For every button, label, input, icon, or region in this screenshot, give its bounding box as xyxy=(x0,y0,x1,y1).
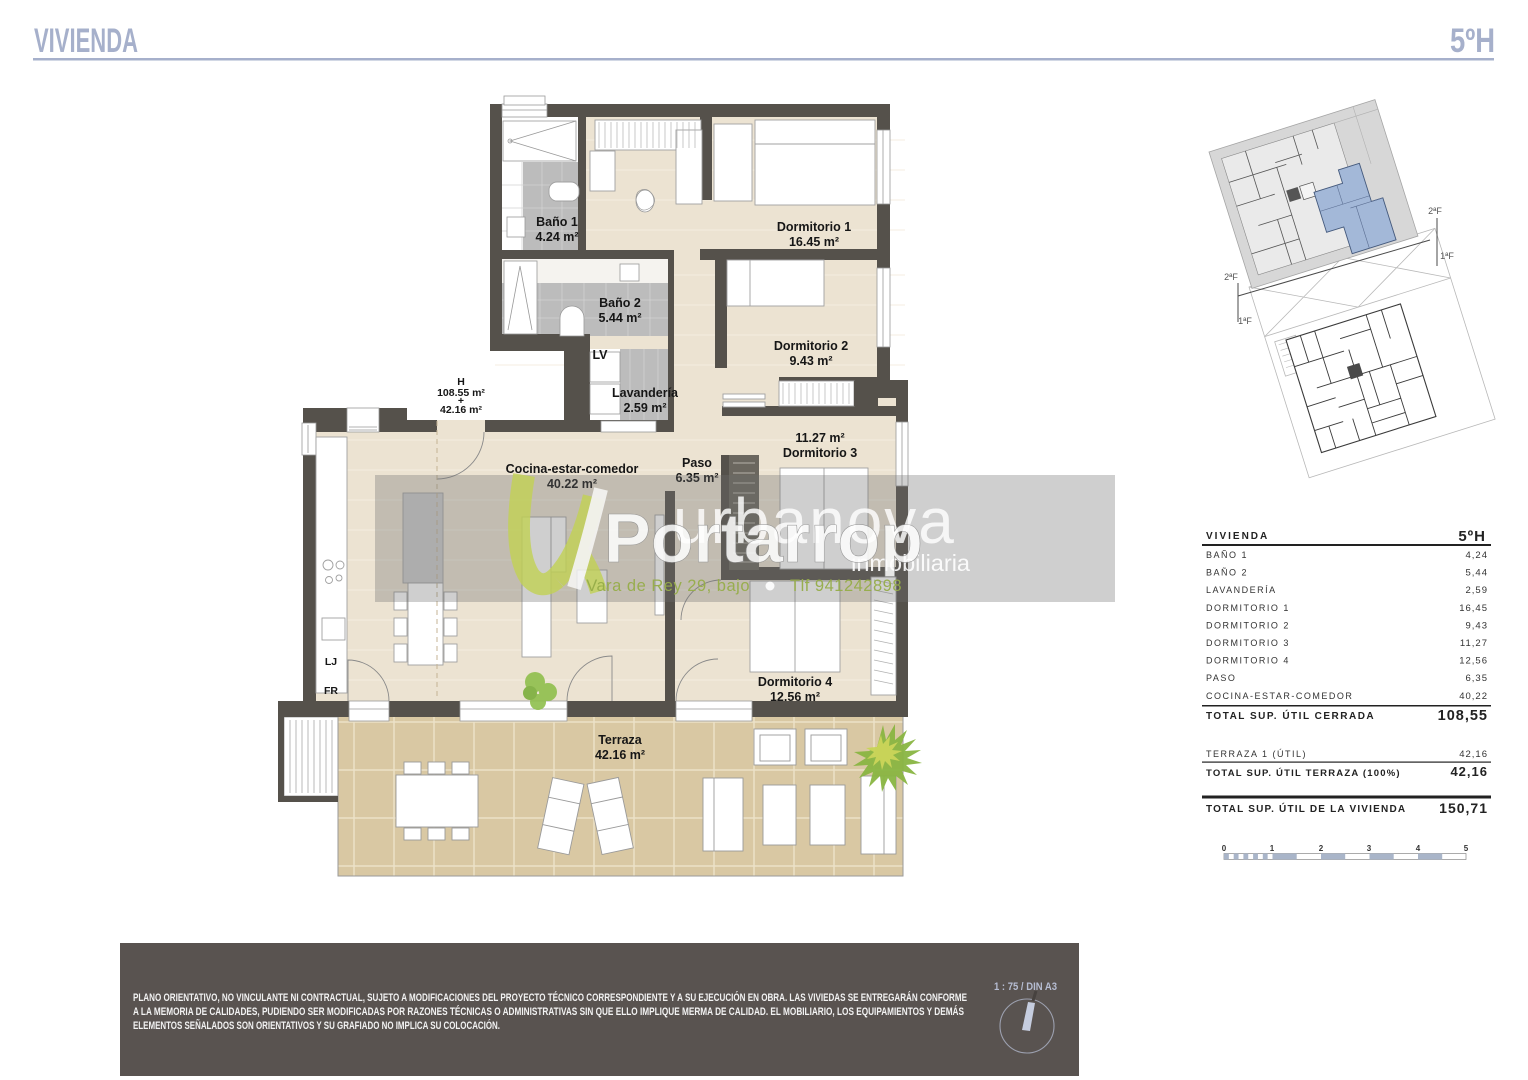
svg-text:2ªF: 2ªF xyxy=(1224,272,1238,282)
svg-text:9,43: 9,43 xyxy=(1466,620,1489,631)
svg-text:DORMITORIO 1: DORMITORIO 1 xyxy=(1206,603,1290,613)
svg-text:BAÑO 2: BAÑO 2 xyxy=(1206,568,1248,578)
svg-text:COCINA-ESTAR-COMEDOR: COCINA-ESTAR-COMEDOR xyxy=(1206,691,1353,701)
svg-text:16.45 m²: 16.45 m² xyxy=(789,235,839,249)
svg-text:2: 2 xyxy=(1319,844,1324,853)
svg-text:40,22: 40,22 xyxy=(1459,691,1488,702)
svg-text:5: 5 xyxy=(1464,844,1469,853)
svg-text:FR: FR xyxy=(324,685,338,697)
svg-text:PASO: PASO xyxy=(1206,673,1236,683)
svg-text:1ªF: 1ªF xyxy=(1440,251,1454,261)
svg-text:9.43 m²: 9.43 m² xyxy=(789,354,832,368)
svg-text:4: 4 xyxy=(1416,844,1421,853)
svg-text:TOTAL SUP. ÚTIL TERRAZA (100%): TOTAL SUP. ÚTIL TERRAZA (100%) xyxy=(1206,767,1401,779)
svg-text:2.59 m²: 2.59 m² xyxy=(623,401,666,415)
svg-text:108,55: 108,55 xyxy=(1438,708,1488,724)
svg-text:11.27 m²: 11.27 m² xyxy=(795,431,844,445)
svg-text:VIVIENDA: VIVIENDA xyxy=(1206,531,1269,542)
svg-text:LAVANDERÍA: LAVANDERÍA xyxy=(1206,585,1277,595)
svg-text:Dormitorio 1: Dormitorio 1 xyxy=(777,220,851,234)
svg-text:ELEMENTOS SEÑALADOS SON ORIENT: ELEMENTOS SEÑALADOS SON ORIENTATIVOS Y S… xyxy=(133,1019,500,1032)
svg-text:5ºH: 5ºH xyxy=(1450,22,1495,60)
svg-text:A LA MEMORIA DE CALIDADES, PUD: A LA MEMORIA DE CALIDADES, PUDIENDO SER … xyxy=(133,1005,964,1018)
svg-text:5.44 m²: 5.44 m² xyxy=(598,311,641,325)
svg-text:DORMITORIO 4: DORMITORIO 4 xyxy=(1206,656,1290,666)
svg-text:2,59: 2,59 xyxy=(1466,585,1489,596)
svg-text:42.16 m²: 42.16 m² xyxy=(595,748,645,762)
svg-text:Dormitorio 4: Dormitorio 4 xyxy=(758,675,832,689)
svg-text:Baño 1: Baño 1 xyxy=(536,215,578,229)
svg-text:16,45: 16,45 xyxy=(1459,603,1488,614)
svg-text:42.16 m²: 42.16 m² xyxy=(440,404,483,416)
svg-text:1: 1 xyxy=(1270,844,1275,853)
svg-text:4,24: 4,24 xyxy=(1466,550,1489,561)
svg-text:LJ: LJ xyxy=(325,656,337,668)
svg-text:Lavandería: Lavandería xyxy=(612,386,679,400)
svg-text:Terraza: Terraza xyxy=(598,733,643,747)
svg-text:11,27: 11,27 xyxy=(1460,638,1488,649)
svg-text:42,16: 42,16 xyxy=(1450,764,1488,779)
svg-text:4.24 m²: 4.24 m² xyxy=(535,230,578,244)
svg-text:12,56: 12,56 xyxy=(1459,656,1488,667)
svg-text:DORMITORIO 2: DORMITORIO 2 xyxy=(1206,620,1290,630)
svg-text:TERRAZA 1 (ÚTIL): TERRAZA 1 (ÚTIL) xyxy=(1206,749,1307,759)
svg-text:0: 0 xyxy=(1222,844,1227,853)
svg-text:6,35: 6,35 xyxy=(1466,673,1489,684)
svg-text:5ºH: 5ºH xyxy=(1458,528,1486,545)
svg-text:Tlf 941242898: Tlf 941242898 xyxy=(790,577,902,595)
svg-text:5,44: 5,44 xyxy=(1466,568,1489,579)
svg-text:LV: LV xyxy=(592,348,608,362)
svg-text:BAÑO 1: BAÑO 1 xyxy=(1206,550,1248,560)
svg-text:2ªF: 2ªF xyxy=(1428,206,1442,216)
svg-text:Portarrop: Portarrop xyxy=(604,499,923,577)
svg-text:Dormitorio 3: Dormitorio 3 xyxy=(783,446,857,460)
svg-text:Baño 2: Baño 2 xyxy=(599,296,641,310)
svg-text:12.56 m²: 12.56 m² xyxy=(770,690,820,704)
svg-text:1 : 75 / DIN A3: 1 : 75 / DIN A3 xyxy=(994,981,1057,993)
svg-text:Dormitorio 2: Dormitorio 2 xyxy=(774,339,848,353)
svg-text:150,71: 150,71 xyxy=(1439,800,1488,816)
svg-text:Paso: Paso xyxy=(682,456,712,470)
svg-text:42,16: 42,16 xyxy=(1459,749,1488,760)
svg-text:DORMITORIO 3: DORMITORIO 3 xyxy=(1206,638,1290,648)
svg-text:TOTAL SUP. ÚTIL CERRADA: TOTAL SUP. ÚTIL CERRADA xyxy=(1206,709,1375,722)
svg-text:3: 3 xyxy=(1367,844,1372,853)
svg-text:PLANO ORIENTATIVO, NO VINCULAN: PLANO ORIENTATIVO, NO VINCULANTE NI CONT… xyxy=(133,991,967,1004)
svg-text:Cocina-estar-comedor: Cocina-estar-comedor xyxy=(506,462,639,476)
svg-text:Vara de Rey 29, bajo: Vara de Rey 29, bajo xyxy=(586,577,750,595)
svg-text:1ªF: 1ªF xyxy=(1238,316,1252,326)
svg-text:VIVIENDA: VIVIENDA xyxy=(34,22,138,60)
svg-text:TOTAL SUP. ÚTIL DE LA VIVIENDA: TOTAL SUP. ÚTIL DE LA VIVIENDA xyxy=(1206,802,1406,815)
